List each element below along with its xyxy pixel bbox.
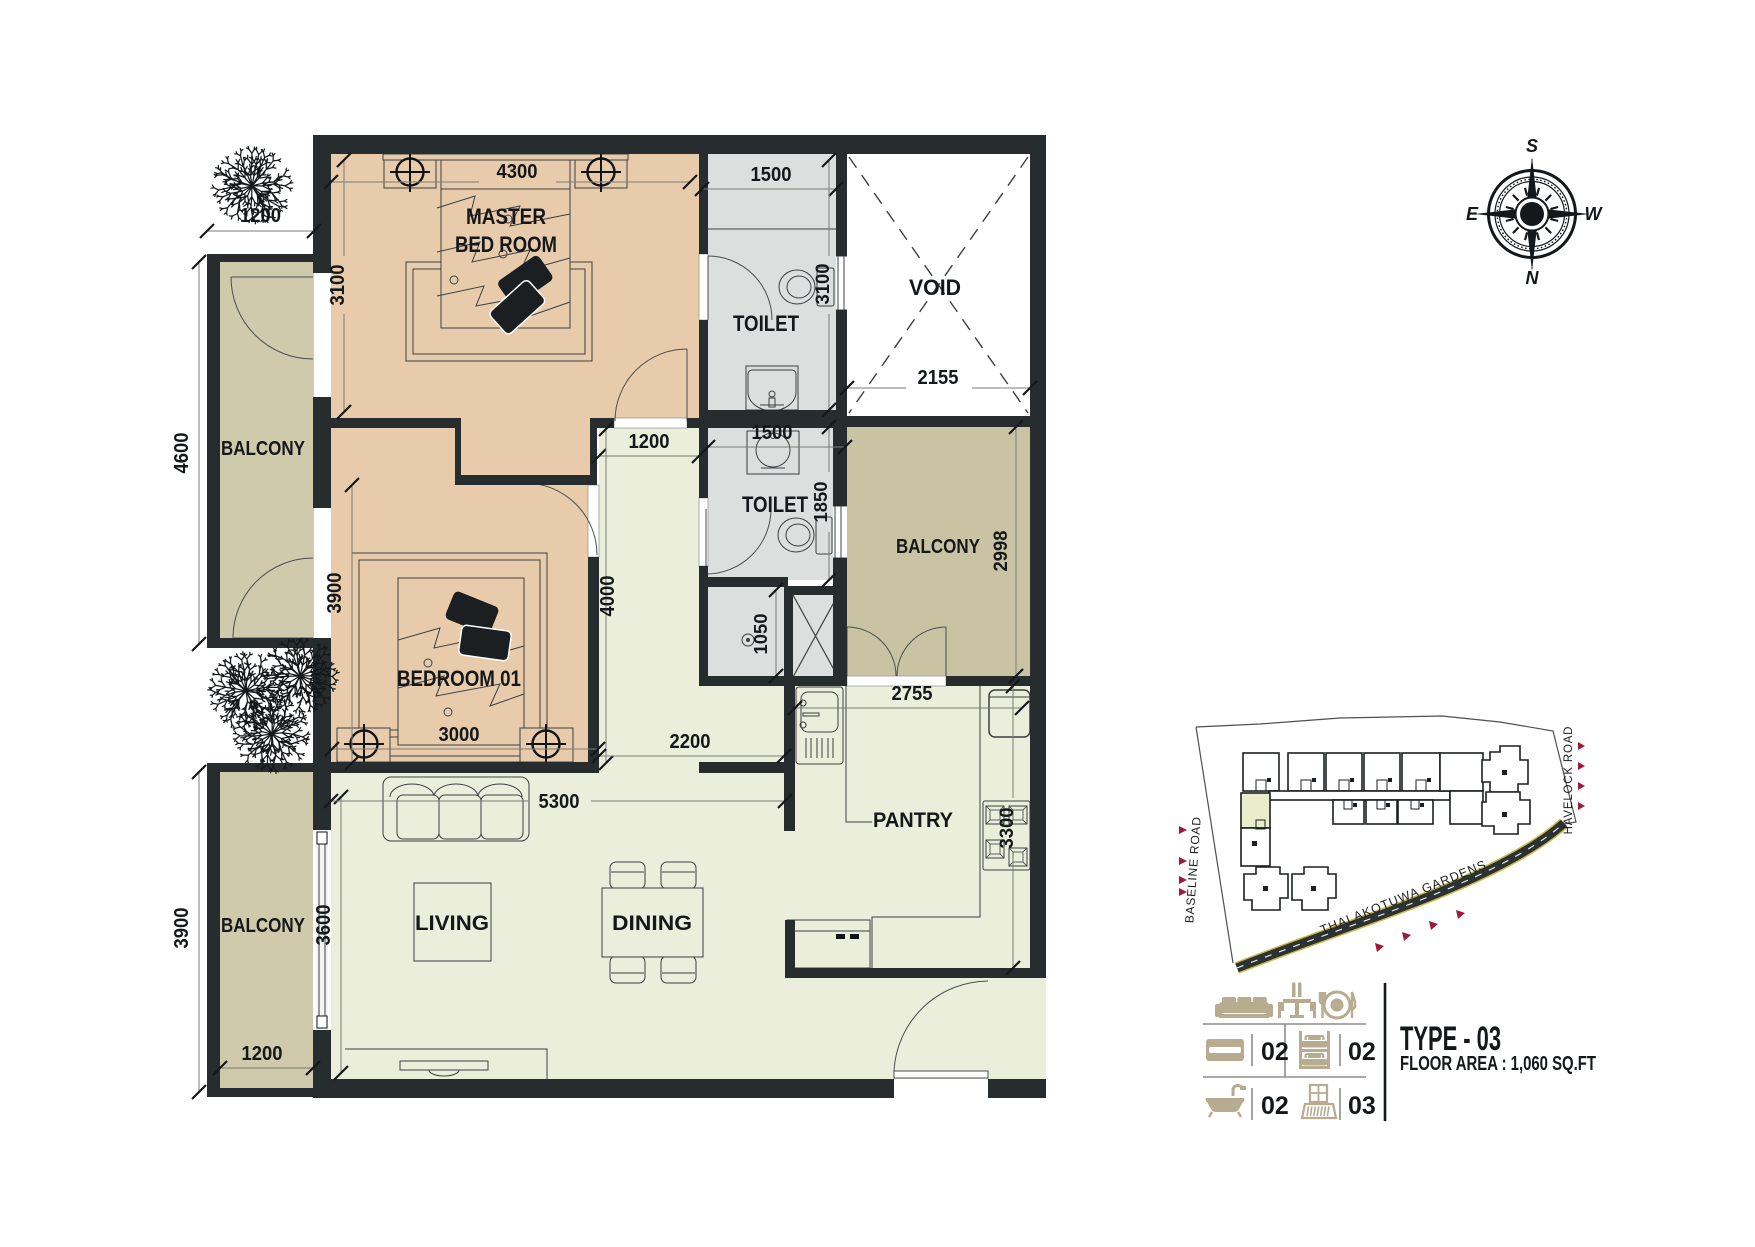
svg-text:3100: 3100	[327, 265, 349, 306]
svg-text:1850: 1850	[811, 482, 831, 523]
svg-text:1050: 1050	[751, 614, 771, 655]
svg-text:02: 02	[1348, 1038, 1376, 1066]
svg-text:03: 03	[1348, 1092, 1376, 1120]
svg-text:FLOOR AREA : 1,060 SQ.FT: FLOOR AREA : 1,060 SQ.FT	[1400, 1053, 1596, 1075]
svg-text:02: 02	[1261, 1092, 1289, 1120]
svg-text:PANTRY: PANTRY	[873, 809, 953, 832]
svg-text:MASTER: MASTER	[466, 204, 546, 229]
svg-text:TOILET: TOILET	[742, 492, 808, 517]
svg-text:4600: 4600	[171, 433, 193, 474]
svg-text:VOID: VOID	[909, 275, 961, 300]
svg-text:HAVELOCK ROAD: HAVELOCK ROAD	[1563, 726, 1575, 835]
svg-text:02: 02	[1261, 1038, 1289, 1066]
svg-text:BALCONY: BALCONY	[221, 438, 306, 460]
svg-text:3900: 3900	[171, 908, 193, 949]
svg-text:BEDROOM 01: BEDROOM 01	[397, 666, 521, 691]
svg-text:LIVING: LIVING	[415, 912, 489, 935]
svg-text:BALCONY: BALCONY	[221, 915, 306, 937]
svg-text:2998: 2998	[991, 531, 1012, 572]
svg-text:2155: 2155	[918, 367, 959, 389]
svg-text:1500: 1500	[752, 422, 793, 444]
svg-text:4000: 4000	[597, 576, 619, 617]
svg-text:BED ROOM: BED ROOM	[455, 232, 557, 257]
svg-text:BALCONY: BALCONY	[896, 536, 981, 558]
svg-text:E: E	[1466, 204, 1479, 224]
svg-text:3100: 3100	[813, 264, 834, 305]
svg-text:W: W	[1585, 204, 1604, 224]
svg-text:N: N	[1526, 268, 1540, 288]
svg-text:1200: 1200	[242, 1043, 283, 1065]
svg-text:2755: 2755	[892, 683, 933, 705]
svg-text:1200: 1200	[629, 431, 670, 453]
svg-text:TOILET: TOILET	[733, 311, 799, 336]
svg-text:3900: 3900	[324, 573, 346, 614]
svg-text:4300: 4300	[497, 161, 538, 183]
svg-text:S: S	[1526, 136, 1538, 156]
svg-text:3600: 3600	[313, 905, 335, 946]
svg-text:5300: 5300	[539, 791, 580, 813]
svg-text:1200: 1200	[240, 205, 281, 227]
svg-text:3000: 3000	[439, 724, 480, 746]
svg-text:2200: 2200	[670, 731, 711, 753]
svg-text:1500: 1500	[751, 164, 792, 186]
svg-text:DINING: DINING	[612, 912, 692, 935]
svg-text:3300: 3300	[997, 808, 1018, 849]
